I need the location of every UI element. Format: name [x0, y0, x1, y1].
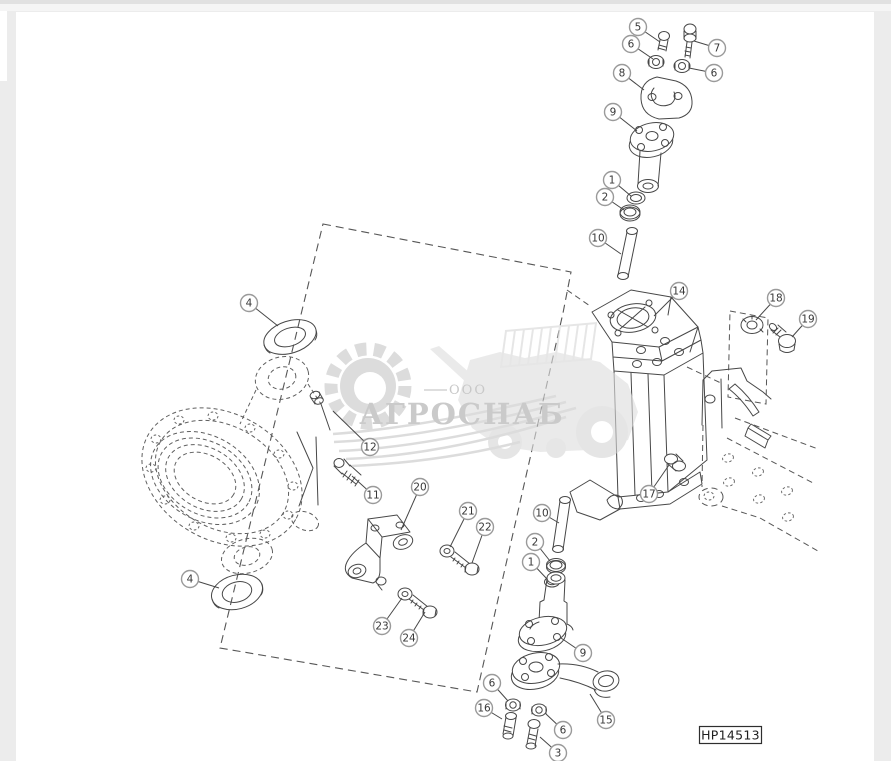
callout-number: 9 [610, 107, 617, 119]
callout-number: 15 [599, 715, 612, 727]
callout-number: 3 [555, 748, 562, 760]
callout-number: 8 [619, 68, 626, 80]
top-bar-light [0, 4, 891, 11]
callout-number: 6 [628, 39, 635, 51]
callout-number: 12 [363, 442, 376, 454]
nut-6-lower-right [532, 704, 547, 716]
watermark-company-name: АГРОСНАБ [359, 397, 565, 431]
callout-number: 4 [187, 574, 194, 586]
callout-number: 5 [635, 22, 642, 34]
callout-number: 17 [642, 489, 655, 501]
callout-number: 21 [461, 506, 474, 518]
callout-number: 16 [477, 703, 491, 715]
left-gutter-panel [0, 11, 7, 81]
callout-number: 6 [560, 725, 567, 737]
callout-number: 9 [580, 648, 587, 660]
callout-number: 6 [711, 68, 718, 80]
watermark-company-prefix: ООО [449, 383, 487, 398]
callout-number: 7 [714, 43, 721, 55]
callout-number: 14 [672, 286, 686, 298]
callout-number: 24 [402, 633, 416, 645]
callout-number: 2 [532, 537, 539, 549]
callout-number: 1 [609, 175, 616, 187]
plate-label: HP14513 [700, 727, 762, 744]
callout-number: 22 [478, 522, 491, 534]
plate-label-text: HP14513 [701, 728, 760, 743]
callout-number: 20 [413, 482, 426, 494]
callout-number: 18 [769, 293, 782, 305]
callout-number: 10 [591, 233, 604, 245]
callout-number: 4 [246, 298, 253, 310]
callout-number: 2 [602, 192, 609, 204]
parts-diagram-canvas: ООО АГРОСНАБ 567689121014181941211202122… [0, 0, 891, 761]
callout-number: 11 [366, 490, 379, 502]
callout-number: 1 [528, 557, 535, 569]
top-bar [0, 0, 891, 4]
callout-number: 10 [535, 508, 548, 520]
callout-number: 19 [801, 314, 814, 326]
diagram-sheet [16, 12, 874, 761]
nut-6-upper-right [674, 60, 690, 73]
callout-number: 6 [489, 678, 496, 690]
callout-number: 23 [375, 621, 388, 633]
